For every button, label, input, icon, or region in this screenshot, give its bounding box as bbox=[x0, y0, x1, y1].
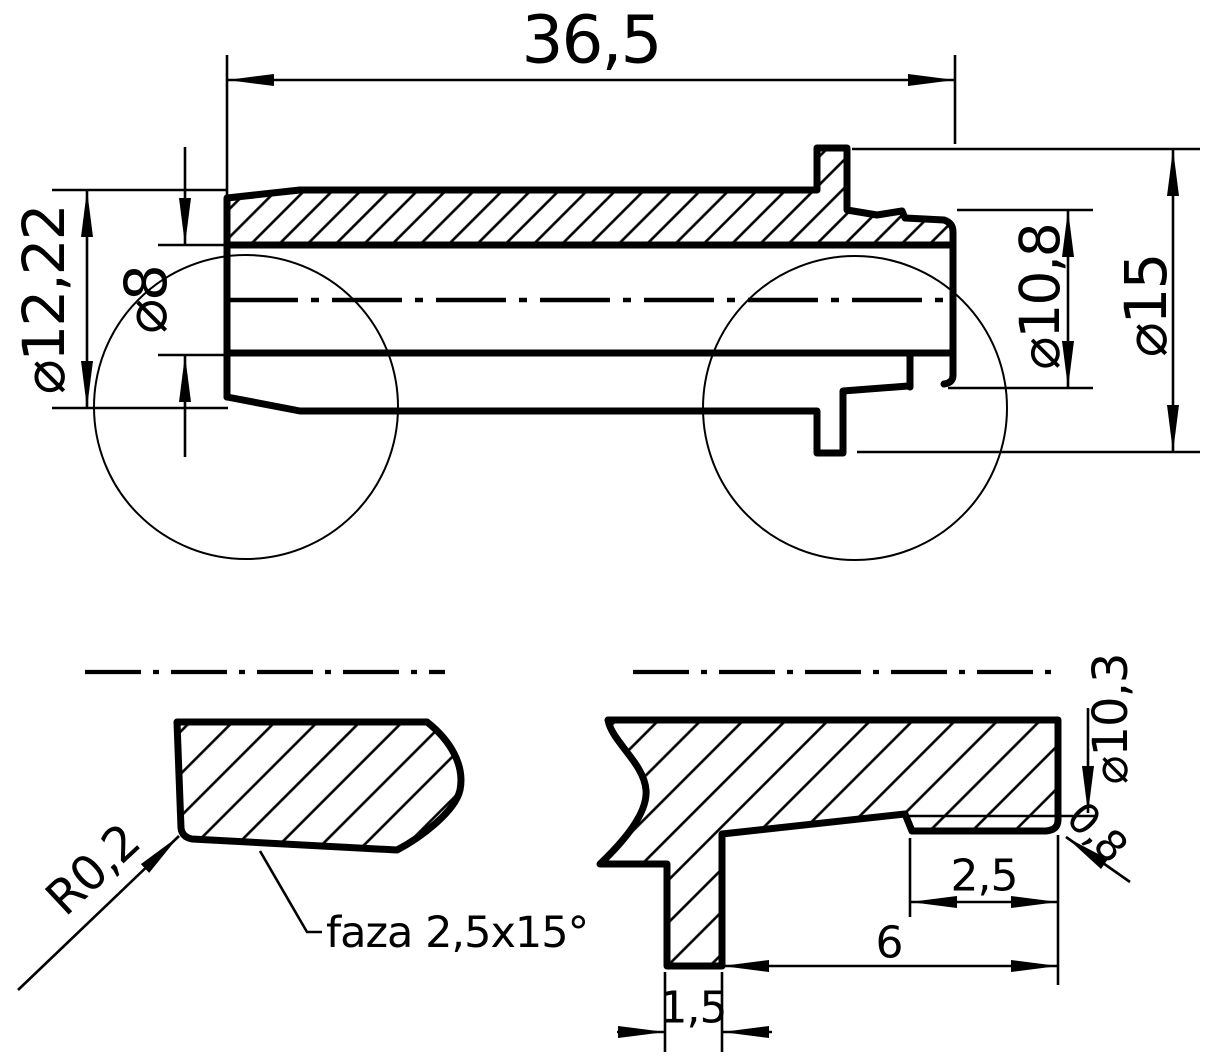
dim-label-flange-diameter: ⌀15 bbox=[1112, 255, 1180, 358]
detail-view-right: ⌀10,3 0,8 2,5 6 1,5 bbox=[600, 654, 1139, 1052]
annotation-corner-radius: 0,8 bbox=[1057, 792, 1137, 882]
detail-left-hatch bbox=[177, 722, 461, 850]
leader-line bbox=[260, 851, 322, 932]
technical-drawing: 36,5 ⌀12,22 ⌀8 ⌀10,8 bbox=[0, 0, 1220, 1060]
dim-label-bore-diameter: ⌀8 bbox=[112, 266, 180, 334]
part-outline-upper bbox=[227, 148, 953, 397]
dim-label-recess-diameter: ⌀10,8 bbox=[1008, 224, 1072, 370]
edge-radius-label: R0,2 bbox=[35, 813, 150, 926]
dim-label-total-length: 36,5 bbox=[522, 2, 661, 79]
dim-label-outer-diameter: ⌀12,22 bbox=[10, 206, 78, 395]
dim-label-recess-length: 6 bbox=[876, 918, 903, 969]
dim-label-flange-thickness: 1,5 bbox=[660, 983, 727, 1034]
dim-label-groove-diameter: ⌀10,3 bbox=[1083, 654, 1139, 785]
corner-radius-label: 0,8 bbox=[1057, 792, 1137, 872]
dim-groove-width: 2,5 bbox=[910, 838, 1058, 917]
detail-view-left: R0,2 faza 2,5x15° bbox=[18, 672, 588, 990]
dim-flange-thickness: 1,5 bbox=[617, 972, 772, 1052]
dim-bore-diameter: ⌀8 bbox=[112, 147, 224, 457]
part-outline-lower bbox=[227, 386, 908, 453]
chamfer-label: faza 2,5x15° bbox=[326, 908, 588, 958]
main-view: 36,5 ⌀12,22 ⌀8 ⌀10,8 bbox=[10, 2, 1200, 561]
dim-recess-diameter: ⌀10,8 bbox=[948, 210, 1093, 388]
annotation-edge-radius: R0,2 bbox=[18, 813, 179, 990]
dim-label-groove-width: 2,5 bbox=[951, 851, 1018, 902]
annotation-chamfer: faza 2,5x15° bbox=[260, 851, 588, 958]
drawing-canvas: 36,5 ⌀12,22 ⌀8 ⌀10,8 bbox=[0, 0, 1220, 1060]
